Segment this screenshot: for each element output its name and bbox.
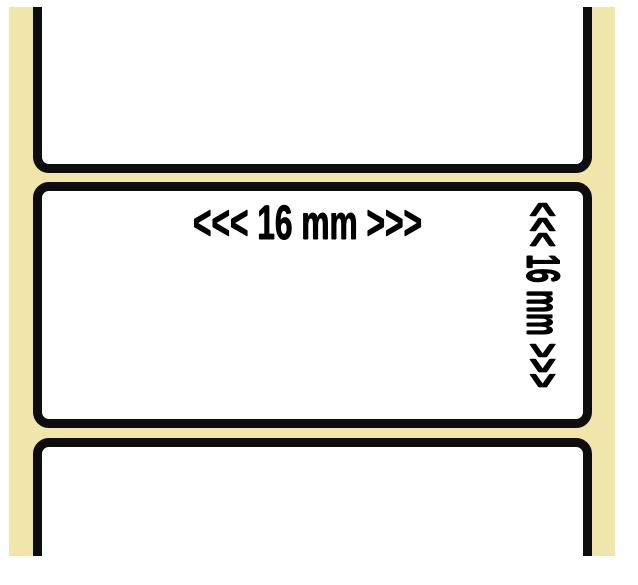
horizontal-dimension-label: <<< 16 mm >>>: [192, 200, 421, 248]
page-background: <<< 16 mm >>> <<< 16 mm >>>: [0, 0, 638, 585]
label-top-partial: [33, 7, 592, 173]
vertical-dimension-label: <<< 16 mm >>>: [520, 202, 566, 388]
label-backing-strip: <<< 16 mm >>> <<< 16 mm >>>: [9, 7, 615, 556]
label-bottom-partial: [33, 438, 592, 556]
label-middle: <<< 16 mm >>> <<< 16 mm >>>: [33, 182, 592, 428]
horizontal-dimension-ruler: <<< 16 mm >>>: [42, 200, 583, 248]
vertical-dimension-ruler: <<< 16 mm >>>: [520, 202, 566, 388]
